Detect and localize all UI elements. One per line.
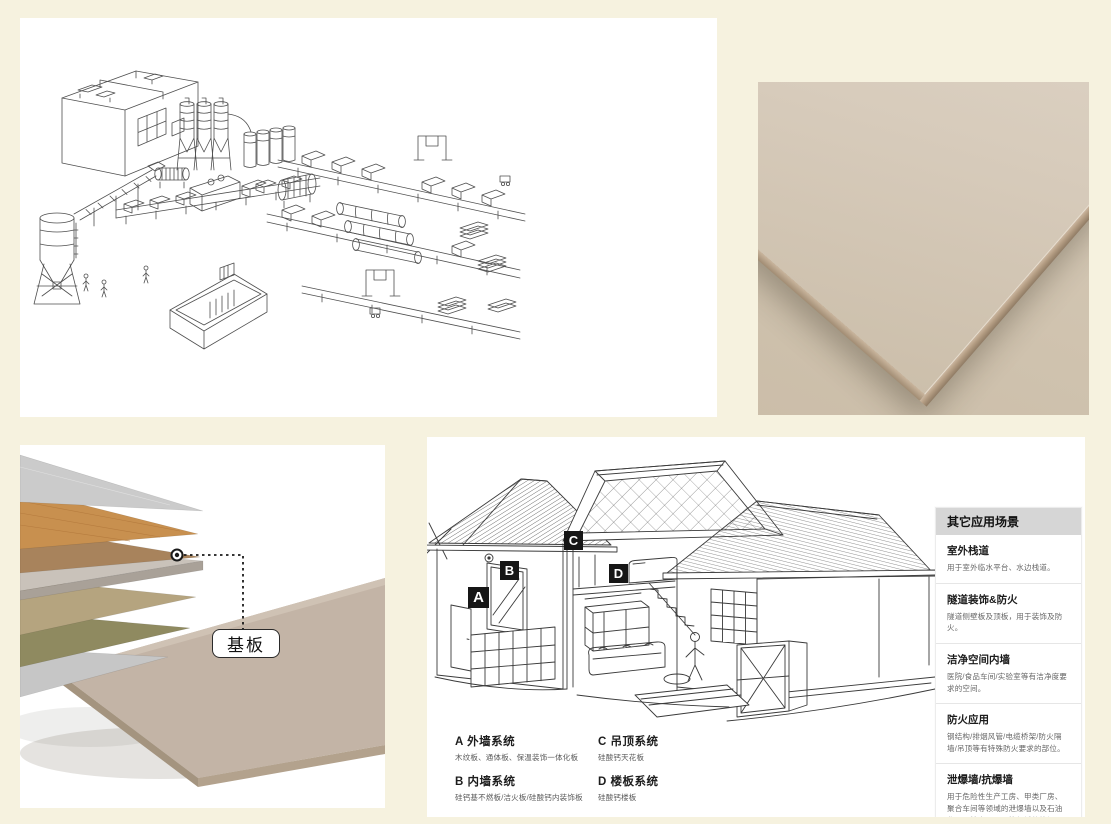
sidebar-item-cleanroom: 洁净空间内墙 医院/食品车间/实验室等有洁净度要求的空间。 bbox=[936, 643, 1081, 703]
house-systems-panel: A B C D A 外墙系统 木纹板、通体板、保温装饰一体化板 B 内墙系统 硅… bbox=[427, 437, 1085, 817]
sidebar-item-tunnel: 隧道装饰&防火 隧道侧壁板及顶板，用于装饰及防火。 bbox=[936, 583, 1081, 643]
marker-letter: C bbox=[569, 534, 578, 547]
substrate-illustration bbox=[20, 445, 385, 808]
marker-exterior-wall: A bbox=[468, 587, 489, 608]
substrate-callout-label: 基板 bbox=[212, 629, 280, 658]
legend-desc: 硅酸钙楼板 bbox=[598, 792, 740, 803]
marker-letter: D bbox=[614, 567, 623, 580]
callout-dot-icon bbox=[172, 550, 183, 561]
sidebar-item-outdoor-walkway: 室外栈道 用于室外临水平台、水边栈道。 bbox=[936, 535, 1081, 583]
sidebar-title: 其它应用场景 bbox=[936, 508, 1081, 535]
legend-title: C 吊顶系统 bbox=[598, 733, 740, 749]
marker-letter: B bbox=[505, 564, 514, 577]
marker-interior-wall: B bbox=[500, 561, 519, 580]
legend-column-right: C 吊顶系统 硅酸钙天花板 D 楼板系统 硅酸钙楼板 bbox=[598, 733, 740, 813]
legend-title: D 楼板系统 bbox=[598, 773, 740, 789]
applications-sidebar: 其它应用场景 室外栈道 用于室外临水平台、水边栈道。 隧道装饰&防火 隧道侧壁板… bbox=[935, 507, 1082, 817]
legend-entry-b: B 内墙系统 硅钙基不燃板/洁火板/硅酸钙内装饰板 bbox=[455, 773, 597, 803]
sidebar-item-fireproof: 防火应用 钢结构/排烟风管/电缆桥架/防火隔墙/吊顶等有特殊防火要求的部位。 bbox=[936, 703, 1081, 763]
brochure-page: 基板 bbox=[0, 0, 1111, 824]
house-cutaway-drawing bbox=[427, 437, 937, 747]
legend-title: A 外墙系统 bbox=[455, 733, 597, 749]
legend-title: B 内墙系统 bbox=[455, 773, 597, 789]
legend-desc: 木纹板、通体板、保温装饰一体化板 bbox=[455, 752, 597, 763]
legend-entry-d: D 楼板系统 硅酸钙楼板 bbox=[598, 773, 740, 803]
substrate-layers-panel: 基板 bbox=[20, 445, 385, 808]
legend-entry-a: A 外墙系统 木纹板、通体板、保温装饰一体化板 bbox=[455, 733, 597, 763]
legend-column-left: A 外墙系统 木纹板、通体板、保温装饰一体化板 B 内墙系统 硅钙基不燃板/洁火… bbox=[455, 733, 597, 813]
marker-floor-slab: D bbox=[609, 564, 628, 583]
sidebar-item-blast-wall: 泄爆墙/抗爆墙 用于危险性生产工房、甲类厂房、聚合车间等领域的泄爆墙以及石油化工… bbox=[936, 763, 1081, 817]
marker-ceiling: C bbox=[564, 531, 583, 550]
fiber-cement-boards-photo bbox=[758, 82, 1089, 415]
legend-desc: 硅钙基不燃板/洁火板/硅酸钙内装饰板 bbox=[455, 792, 597, 803]
legend-entry-c: C 吊顶系统 硅酸钙天花板 bbox=[598, 733, 740, 763]
marker-letter: A bbox=[473, 590, 484, 605]
factory-line-drawing-panel bbox=[20, 18, 717, 417]
legend-desc: 硅酸钙天花板 bbox=[598, 752, 740, 763]
factory-line-drawing bbox=[20, 18, 717, 415]
